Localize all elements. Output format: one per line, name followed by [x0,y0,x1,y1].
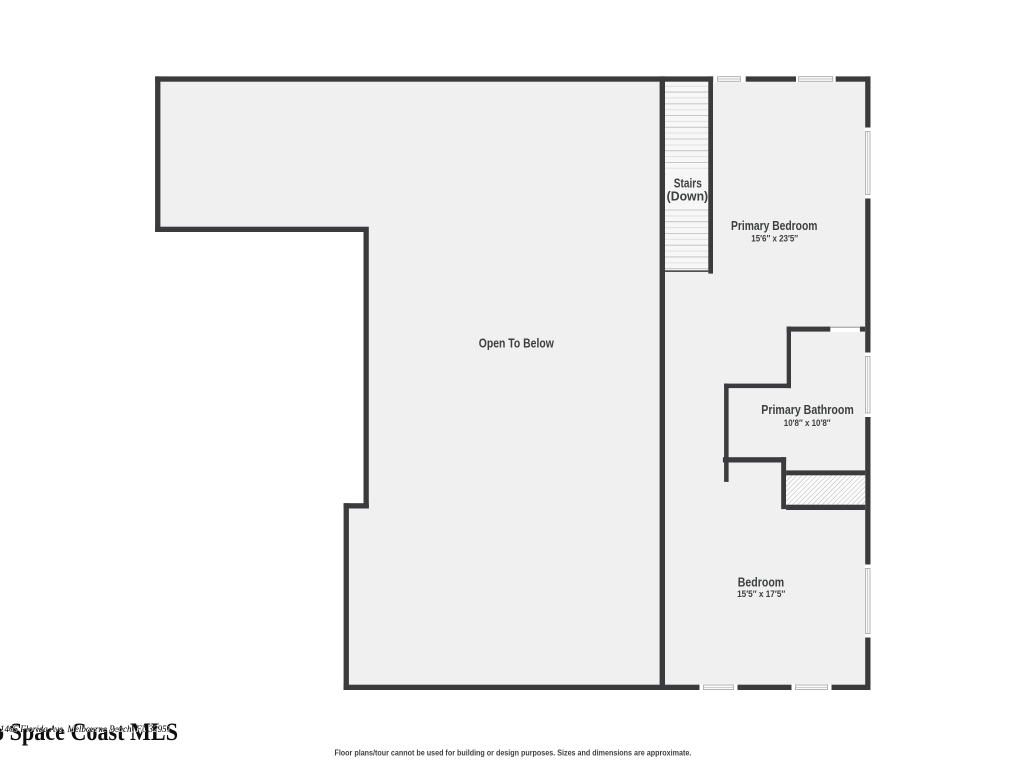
svg-text:15′6″ x 23′5″: 15′6″ x 23′5″ [751,234,798,245]
svg-text:(Down): (Down) [667,188,709,203]
svg-text:Bedroom: Bedroom [738,574,784,589]
svg-text:Primary Bedroom: Primary Bedroom [731,218,818,233]
svg-text:15′5″ x 17′5″: 15′5″ x 17′5″ [737,589,786,600]
svg-text:10′8″ x 10′8″: 10′8″ x 10′8″ [784,418,831,429]
svg-text:Open To Below: Open To Below [479,336,555,351]
svg-text:Primary Bathroom: Primary Bathroom [761,402,854,417]
